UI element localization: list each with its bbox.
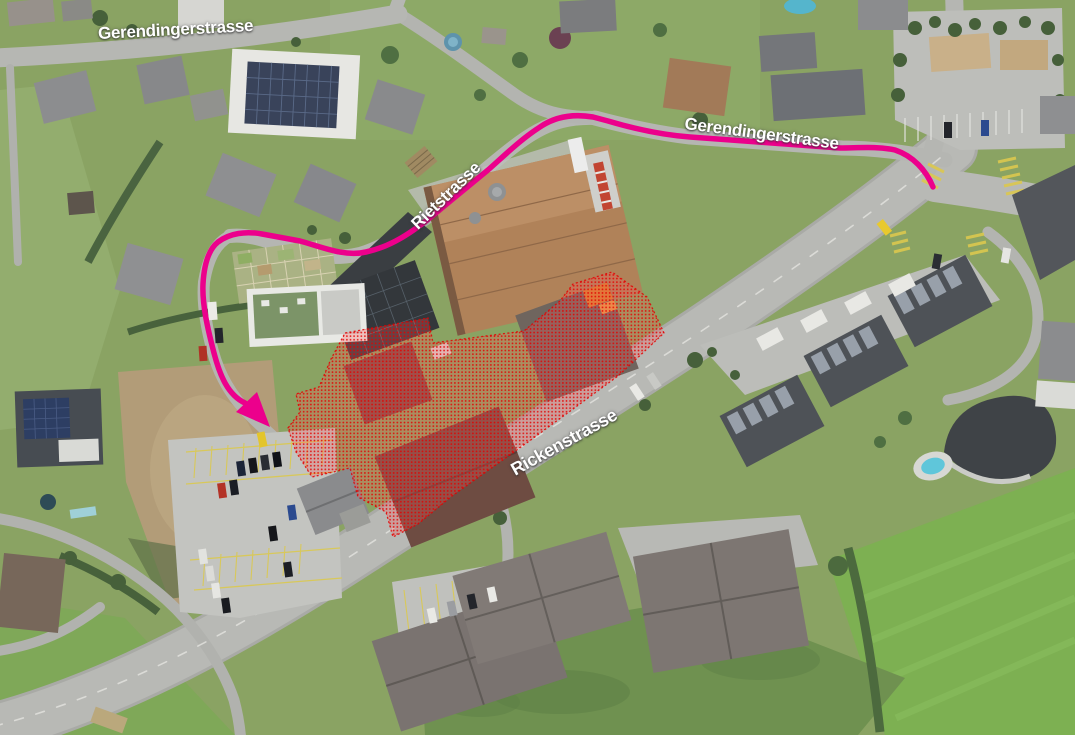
solar-flat-building xyxy=(228,49,360,140)
house-roof xyxy=(1040,96,1075,134)
house-roof xyxy=(771,69,866,121)
hot-tub xyxy=(40,494,56,510)
house-roof xyxy=(178,0,224,28)
house-roof xyxy=(1038,321,1075,382)
silo xyxy=(469,212,481,224)
house-roof xyxy=(559,0,617,33)
house-roof xyxy=(61,0,93,22)
house-roof xyxy=(858,0,908,30)
solar-house xyxy=(15,389,104,468)
house-roof-brown xyxy=(663,58,731,116)
shed-roof xyxy=(481,27,506,45)
house-roof xyxy=(0,553,66,633)
white-van xyxy=(207,302,217,321)
shed-roof xyxy=(67,191,95,215)
house-roof xyxy=(759,32,817,72)
red-car xyxy=(199,346,208,362)
aerial-photo xyxy=(0,0,1075,735)
aerial-map: Gerendingerstrasse Gerendingerstrasse Ri… xyxy=(0,0,1075,735)
